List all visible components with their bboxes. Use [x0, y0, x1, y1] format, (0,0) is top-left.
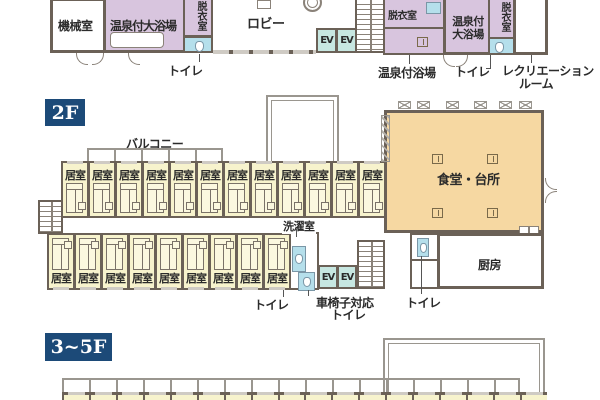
leader-line: [199, 54, 200, 62]
guest-room-label: 居室: [306, 167, 330, 183]
elevator-label: EV: [318, 30, 335, 51]
toilet-icon: [495, 42, 504, 53]
leader-line: [409, 55, 410, 64]
guest-room: 居室: [331, 161, 359, 218]
guest-room: 居室: [277, 161, 305, 218]
dressing-left-label: 脱衣室: [193, 1, 208, 31]
window: [257, 392, 274, 395]
toilet-icon: [195, 41, 204, 52]
window: [95, 392, 112, 395]
balcony-large-2f: [266, 95, 339, 162]
bathtub-icon: [110, 32, 164, 48]
guest-room: 居室: [128, 233, 156, 290]
guest-room: 居室: [61, 161, 89, 218]
guest-room-label: 居室: [211, 270, 235, 286]
window: [53, 287, 69, 290]
window: [121, 161, 137, 164]
floor35-badge: 3~5F: [45, 333, 112, 361]
leader-line: [421, 256, 422, 294]
guest-room-label: 居室: [103, 270, 127, 286]
window: [445, 392, 462, 395]
guest-room-partial: [412, 392, 439, 400]
recreation-label-2: ルーム: [519, 75, 553, 92]
kitchen-label: 厨房: [478, 256, 501, 273]
dressing-room-mid: 脱衣室: [383, 0, 446, 29]
toilet-room-right: [488, 37, 516, 55]
elevator-2f-2: EV: [337, 265, 357, 289]
guest-room-partial: [197, 392, 224, 400]
wheelchair-toilet-label-2: トイレ: [331, 306, 366, 323]
guest-room-label: 居室: [76, 270, 100, 286]
guest-room-partial: [439, 392, 466, 400]
window: [215, 287, 231, 290]
desk-icon: [91, 241, 99, 249]
guest-room-partial: [170, 392, 197, 400]
guest-room: 居室: [196, 161, 224, 218]
toilet-stall-icon: [292, 246, 306, 272]
guest-room: 居室: [182, 233, 210, 290]
window: [134, 287, 150, 290]
window: [364, 392, 381, 395]
elevator-label: EV: [320, 267, 336, 287]
desk-icon: [267, 202, 275, 210]
window: [148, 161, 164, 164]
floor2-badge: 2F: [45, 99, 85, 126]
window: [499, 392, 516, 395]
dressing-mid-label: 脱衣室: [388, 7, 417, 22]
guest-room-label: 居室: [130, 270, 154, 286]
window: [122, 392, 139, 395]
floor35-badge-text: 3~5F: [51, 336, 107, 358]
guest-room-label: 居室: [252, 167, 276, 183]
washbasin-icon: [426, 2, 441, 14]
desk-icon: [375, 202, 383, 210]
door-arc: [92, 53, 104, 65]
guest-room: 居室: [74, 233, 102, 290]
desk-icon: [132, 202, 140, 210]
guest-room-label: 居室: [157, 270, 181, 286]
bath-room-right: 温泉付 大浴場: [443, 0, 491, 55]
bath-room-mid: [383, 27, 446, 55]
window: [310, 161, 326, 164]
window: [161, 287, 177, 290]
window: [310, 392, 327, 395]
staircase-1f: [355, 0, 385, 53]
desk-icon: [321, 202, 329, 210]
toilet-room-2f: [410, 233, 439, 289]
window-icon: [499, 101, 512, 109]
window: [203, 392, 220, 395]
window: [364, 161, 380, 164]
floor-plan-diagram: 機械室 温泉付大浴場 脱衣室 ロビー EV EV 脱衣室: [0, 0, 600, 400]
guest-room-partial: [520, 392, 547, 400]
guest-room-label: 居室: [184, 270, 208, 286]
machine-room: 機械室: [50, 0, 106, 53]
table-icon: [487, 208, 498, 218]
guest-room: 居室: [142, 161, 170, 218]
toilet-callout-right: トイレ: [455, 63, 490, 80]
staircase-2f-left: [38, 200, 63, 234]
window-hatch: [381, 115, 390, 162]
guest-room-label: 居室: [225, 167, 249, 183]
window: [80, 287, 96, 290]
guest-room-label: 居室: [238, 270, 262, 286]
window: [230, 392, 247, 395]
guest-room: 居室: [88, 161, 116, 218]
bath-room-left: 温泉付大浴場: [103, 0, 186, 53]
leader-line: [308, 290, 309, 296]
guest-room-partial: [385, 392, 412, 400]
guest-room-partial: [62, 392, 89, 400]
window: [283, 161, 299, 164]
floor2-badge-text: 2F: [52, 102, 79, 124]
bath-mid-callout: 温泉付浴場: [378, 64, 436, 81]
guest-room-partial: [358, 392, 385, 400]
laundry-room: [289, 232, 319, 290]
desk-icon: [294, 202, 302, 210]
guest-room-label: 居室: [333, 167, 357, 183]
table-icon: [432, 208, 443, 218]
window: [107, 287, 123, 290]
toilet-callout-2f-right: トイレ: [406, 294, 441, 311]
guest-room: 居室: [169, 161, 197, 218]
room-row-bottom: 居室 居室 居室 居室 居室 居室 居室: [48, 233, 291, 290]
door-arc: [76, 53, 88, 65]
window-icon: [398, 101, 411, 109]
machine-room-label: 機械室: [58, 17, 93, 34]
guest-room-label: 居室: [265, 270, 289, 286]
guest-room-partial: [224, 392, 251, 400]
window-icon: [519, 101, 532, 109]
table-icon: [487, 154, 498, 164]
bath-bench-icon: [417, 37, 428, 47]
desk-icon: [199, 241, 207, 249]
window: [94, 161, 110, 164]
room-row-top: 居室 居室 居室 居室 居室 居室 居室: [62, 161, 386, 218]
window: [68, 392, 85, 395]
desk-icon: [253, 241, 261, 249]
dressing-room-left: 脱衣室: [183, 0, 213, 37]
guest-room: 居室: [304, 161, 332, 218]
guest-room: 居室: [115, 161, 143, 218]
window: [337, 161, 353, 164]
lobby-window-wall: [213, 50, 316, 54]
desk-icon: [64, 241, 72, 249]
door-arc: [545, 178, 557, 190]
guest-room-label: 居室: [49, 270, 73, 286]
dining-label: 食堂・台所: [437, 169, 500, 188]
door-arc: [128, 53, 140, 65]
dressing-room-right: 脱衣室: [488, 0, 516, 39]
desk-icon: [186, 202, 194, 210]
desk-icon: [172, 241, 180, 249]
desk-icon: [78, 202, 86, 210]
guest-room-partial: [251, 392, 278, 400]
elevator-label: EV: [339, 267, 355, 287]
guest-room: 居室: [47, 233, 75, 290]
desk-icon: [145, 241, 153, 249]
guest-room-partial: [89, 392, 116, 400]
guest-room-label: 居室: [63, 167, 87, 183]
guest-room-partial: [466, 392, 493, 400]
window-icon: [474, 101, 487, 109]
elevator-1f-1: EV: [316, 28, 337, 53]
guest-room-partial: [143, 392, 170, 400]
guest-room: 居室: [236, 233, 264, 290]
laundry-label: 洗濯室: [282, 218, 316, 234]
room-row-35f: [62, 392, 547, 400]
toilet-callout-left: トイレ: [168, 62, 203, 79]
window: [472, 392, 489, 395]
wall-divider: [412, 259, 437, 261]
door-arc: [545, 191, 557, 203]
window: [175, 161, 191, 164]
guest-room: 居室: [209, 233, 237, 290]
window: [176, 392, 193, 395]
desk-icon: [159, 202, 167, 210]
window: [67, 161, 83, 164]
kitchen-room: 厨房: [437, 233, 544, 289]
dressing-right-label: 脱衣室: [497, 2, 512, 32]
desk-icon: [213, 202, 221, 210]
guest-room-partial: [278, 392, 305, 400]
window: [202, 161, 218, 164]
guest-room-label: 居室: [117, 167, 141, 183]
desk-icon: [348, 202, 356, 210]
elevator-label: EV: [338, 30, 355, 51]
staircase-2f-right: [357, 240, 385, 289]
window: [188, 287, 204, 290]
toilet-callout-2f-left: トイレ: [254, 296, 289, 313]
wheelchair-toilet-icon: [298, 272, 315, 291]
leader-line: [490, 55, 491, 68]
window: [229, 161, 245, 164]
recreation-room: [513, 0, 548, 55]
window: [149, 392, 166, 395]
window: [242, 287, 258, 290]
guest-room: 居室: [155, 233, 183, 290]
window: [337, 392, 354, 395]
guest-room: 居室: [263, 233, 291, 290]
round-table-icon: [303, 0, 322, 12]
guest-room-label: 居室: [279, 167, 303, 183]
guest-room-partial: [331, 392, 358, 400]
window: [526, 392, 543, 395]
leader-line: [296, 229, 297, 237]
desk-icon: [226, 241, 234, 249]
door-arc: [443, 55, 455, 67]
guest-room: 居室: [358, 161, 386, 218]
guest-room: 居室: [223, 161, 251, 218]
desk-icon: [105, 202, 113, 210]
balcony-rail-35f: [62, 378, 520, 392]
guest-room-partial: [304, 392, 331, 400]
guest-room-label: 居室: [90, 167, 114, 183]
guest-room: 居室: [101, 233, 129, 290]
guest-room-label: 居室: [144, 167, 168, 183]
guest-room: 居室: [250, 161, 278, 218]
elevator-2f-1: EV: [318, 265, 338, 289]
desk-icon: [240, 202, 248, 210]
guest-room-label: 居室: [198, 167, 222, 183]
window: [418, 392, 435, 395]
window: [256, 161, 272, 164]
bath-right-label-2: 大浴場: [450, 26, 486, 42]
guest-room-partial: [493, 392, 520, 400]
lobby-label: ロビー: [247, 13, 285, 32]
table-icon: [432, 154, 443, 164]
toilet-room-left: [183, 36, 213, 53]
window-icon: [417, 101, 430, 109]
desk-icon: [118, 241, 126, 249]
window-icon: [446, 101, 459, 109]
guest-room-label: 居室: [171, 167, 195, 183]
toilet-stall-icon: [417, 238, 429, 257]
guest-room-partial: [116, 392, 143, 400]
elevator-1f-2: EV: [336, 28, 357, 53]
window: [284, 392, 301, 395]
guest-room-label: 居室: [360, 167, 384, 183]
window: [391, 392, 408, 395]
desk-icon: [280, 241, 288, 249]
dining-kitchen-room: 食堂・台所: [384, 110, 544, 233]
bench-icon: [257, 0, 271, 9]
